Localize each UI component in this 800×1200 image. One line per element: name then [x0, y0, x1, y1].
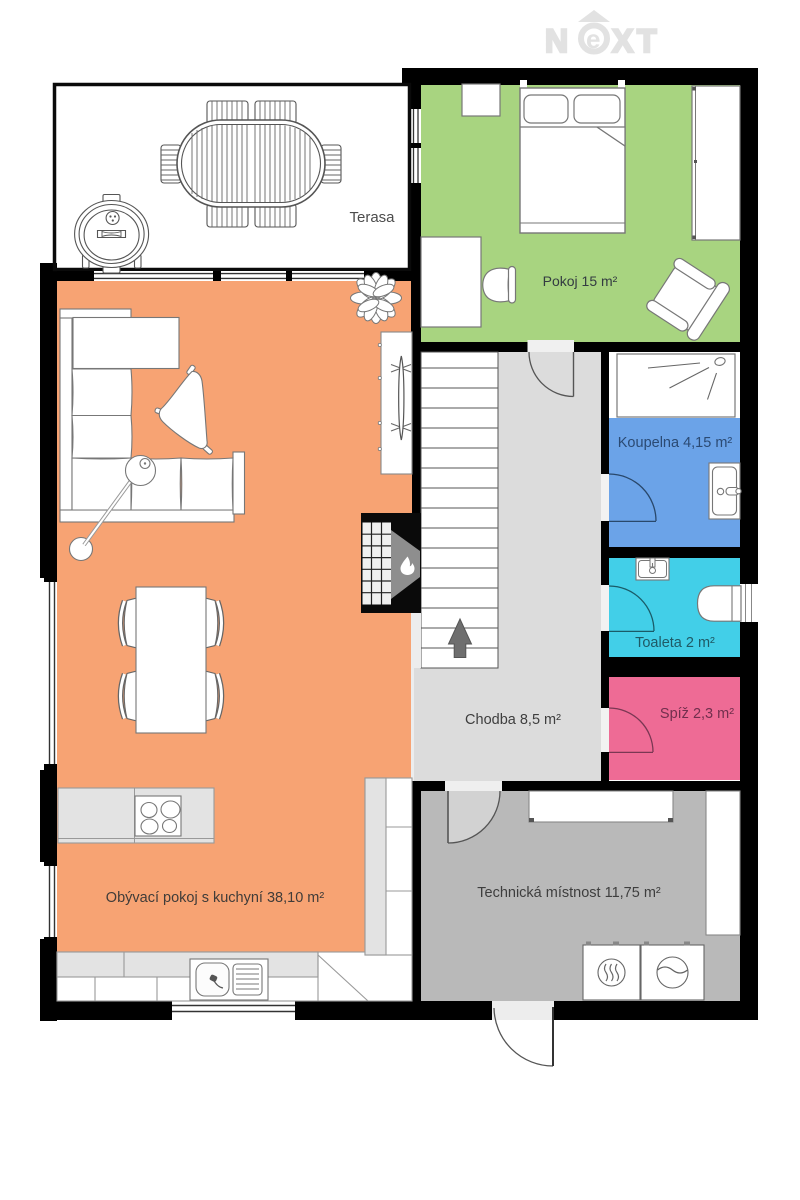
- svg-text:T: T: [637, 23, 657, 59]
- svg-text:e: e: [586, 24, 600, 54]
- svg-text:Pokoj 15 m²: Pokoj 15 m²: [543, 273, 618, 289]
- svg-text:Terasa: Terasa: [349, 209, 395, 226]
- svg-text:X: X: [612, 23, 634, 59]
- svg-text:Obývací pokoj s kuchyní 38,10: Obývací pokoj s kuchyní 38,10 m²: [106, 890, 325, 906]
- svg-text:Spíž 2,3 m²: Spíž 2,3 m²: [660, 706, 734, 722]
- svg-text:Toaleta 2 m²: Toaleta 2 m²: [635, 635, 715, 651]
- svg-text:Chodba 8,5 m²: Chodba 8,5 m²: [465, 712, 561, 728]
- svg-text:Technická místnost 11,75 m²: Technická místnost 11,75 m²: [477, 885, 661, 901]
- svg-text:N: N: [545, 23, 568, 59]
- svg-text:Koupelna 4,15 m²: Koupelna 4,15 m²: [618, 435, 733, 451]
